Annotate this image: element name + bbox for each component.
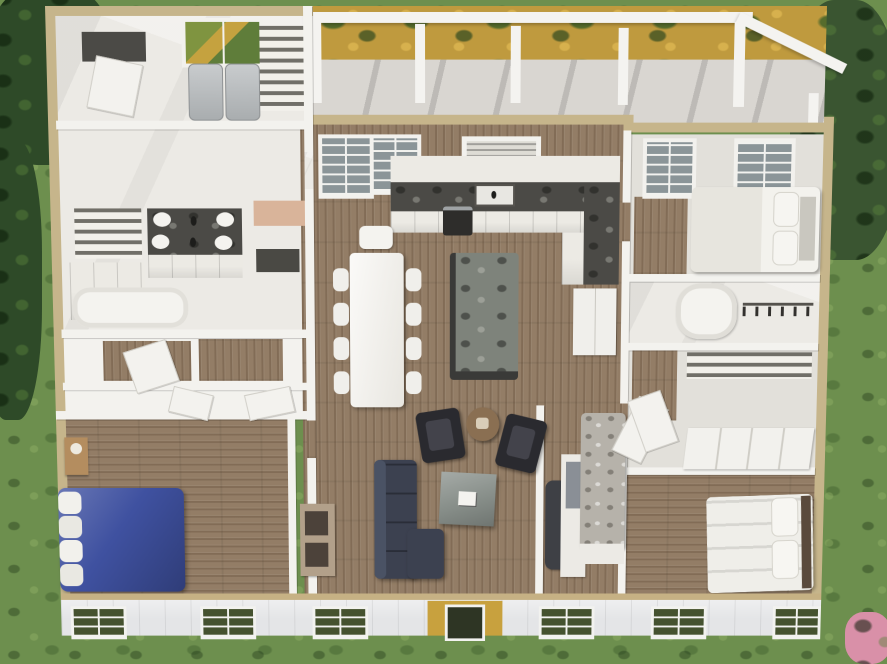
dining-chair [406,371,422,394]
counter-right-run [583,182,620,284]
front-window [312,606,368,639]
dining-chair [406,337,422,360]
cabinet-fronts-side [562,233,584,285]
sofa-back-cushions [374,460,386,579]
armchair [415,407,466,464]
bedroom-top-right-wood [633,197,687,274]
closet-shelf-band [687,352,812,379]
headboard [801,496,812,589]
pillow [773,541,798,579]
porch-post [733,22,746,107]
door-split [746,428,753,469]
closet-rod [743,303,814,306]
pillow [774,193,798,226]
porch-deck [309,60,825,123]
front-door [445,604,485,641]
peach-bench [253,201,305,226]
kitchen-window [318,134,374,198]
closet-floor-right [199,339,284,381]
linen-shelves [74,208,142,258]
console-drawer [305,543,328,567]
side-table [466,407,499,441]
vanity-sink [216,212,234,227]
shrub-left [0,140,42,420]
media-console [300,504,335,576]
door-split [777,428,784,469]
dining-chair [406,303,422,326]
vanity-faucet [190,237,196,247]
pillow [772,498,798,536]
pillow [59,516,83,538]
sliding-closet-doors [683,428,814,469]
sectional-sofa [374,460,444,581]
window-panes [322,138,370,195]
house [45,6,837,632]
pillow [773,232,797,265]
front-entry [428,601,503,636]
magazines [458,491,476,506]
dining-chair [333,337,349,360]
laundry-window [181,18,264,68]
wall-top-sill [61,593,822,599]
nightstand [64,437,88,474]
wall-right-1 [629,274,820,282]
doorway-hallway-right [622,203,630,242]
doorway-hall [304,152,313,189]
wall-outer-top-left [45,6,313,16]
range [443,206,473,235]
wall-kitchen-back [304,115,634,125]
dining-table [350,253,404,407]
laundry-shelves [259,26,304,111]
console-drawer [305,511,328,535]
wall-bedroom-blue-right [287,419,297,598]
dryer [225,64,261,121]
dining-chair [333,303,349,326]
upholstered-panel [566,462,582,509]
shower-nook [256,249,300,272]
porch-post [618,28,629,105]
refrigerator [573,288,617,355]
wall-laundry-bath [56,121,308,130]
fridge-door-split [594,288,596,355]
sink-faucet [491,191,496,199]
wall-bath-closet [61,330,310,339]
pergola-beam [305,12,753,23]
vanity-front [148,255,243,278]
hall-bathtub [676,284,738,339]
double-vanity [147,208,242,254]
dining-chair [406,268,422,291]
coffee-table [439,472,497,527]
front-window [772,606,821,639]
porch-post [511,26,521,103]
front-window [200,606,256,639]
white-bed-front [706,494,813,594]
window-panes [646,142,692,195]
front-window [539,606,595,639]
vanity-faucet [191,216,197,226]
vanity-sink [215,236,233,250]
cabinet-fronts [391,211,584,232]
wall-right-2 [629,343,819,351]
pillow [60,564,84,586]
blue-bed-pillows [58,490,86,590]
closet-door-laundry [86,55,143,117]
dining-chair [333,268,349,291]
pillow [59,540,83,562]
kitchen-island [450,253,519,380]
headboard [799,197,816,261]
window-mullion [222,22,225,64]
window-panes [737,142,792,193]
dining-chair [334,371,350,394]
vanity-sink [153,212,171,227]
porch-post [415,24,425,103]
white-bed-rear [690,187,820,272]
tray [476,418,489,429]
laundry-counter [82,32,146,62]
vanity-sink [152,235,170,249]
armchair-seat [506,425,536,461]
sofa-chaise [407,529,444,579]
wall-rear-right [623,123,833,133]
kitchen-sink [475,184,516,206]
gray-bed-footboard [580,544,625,564]
front-window [651,606,707,639]
upper-cabinets [391,156,621,182]
armchair-seat [425,418,455,452]
dining-chair [359,226,393,249]
porch-post-corner [808,93,819,126]
door-split [714,428,721,469]
doorway-bedroom-blue [307,420,316,458]
lamp [70,443,82,454]
flower-bush-pink [845,612,887,664]
washer [188,64,224,121]
floor-plan-scene [0,0,887,664]
bedroom-window [642,138,696,198]
pillow [58,492,82,514]
hangers [743,307,814,317]
bathtub [72,287,188,327]
front-window [71,606,127,639]
